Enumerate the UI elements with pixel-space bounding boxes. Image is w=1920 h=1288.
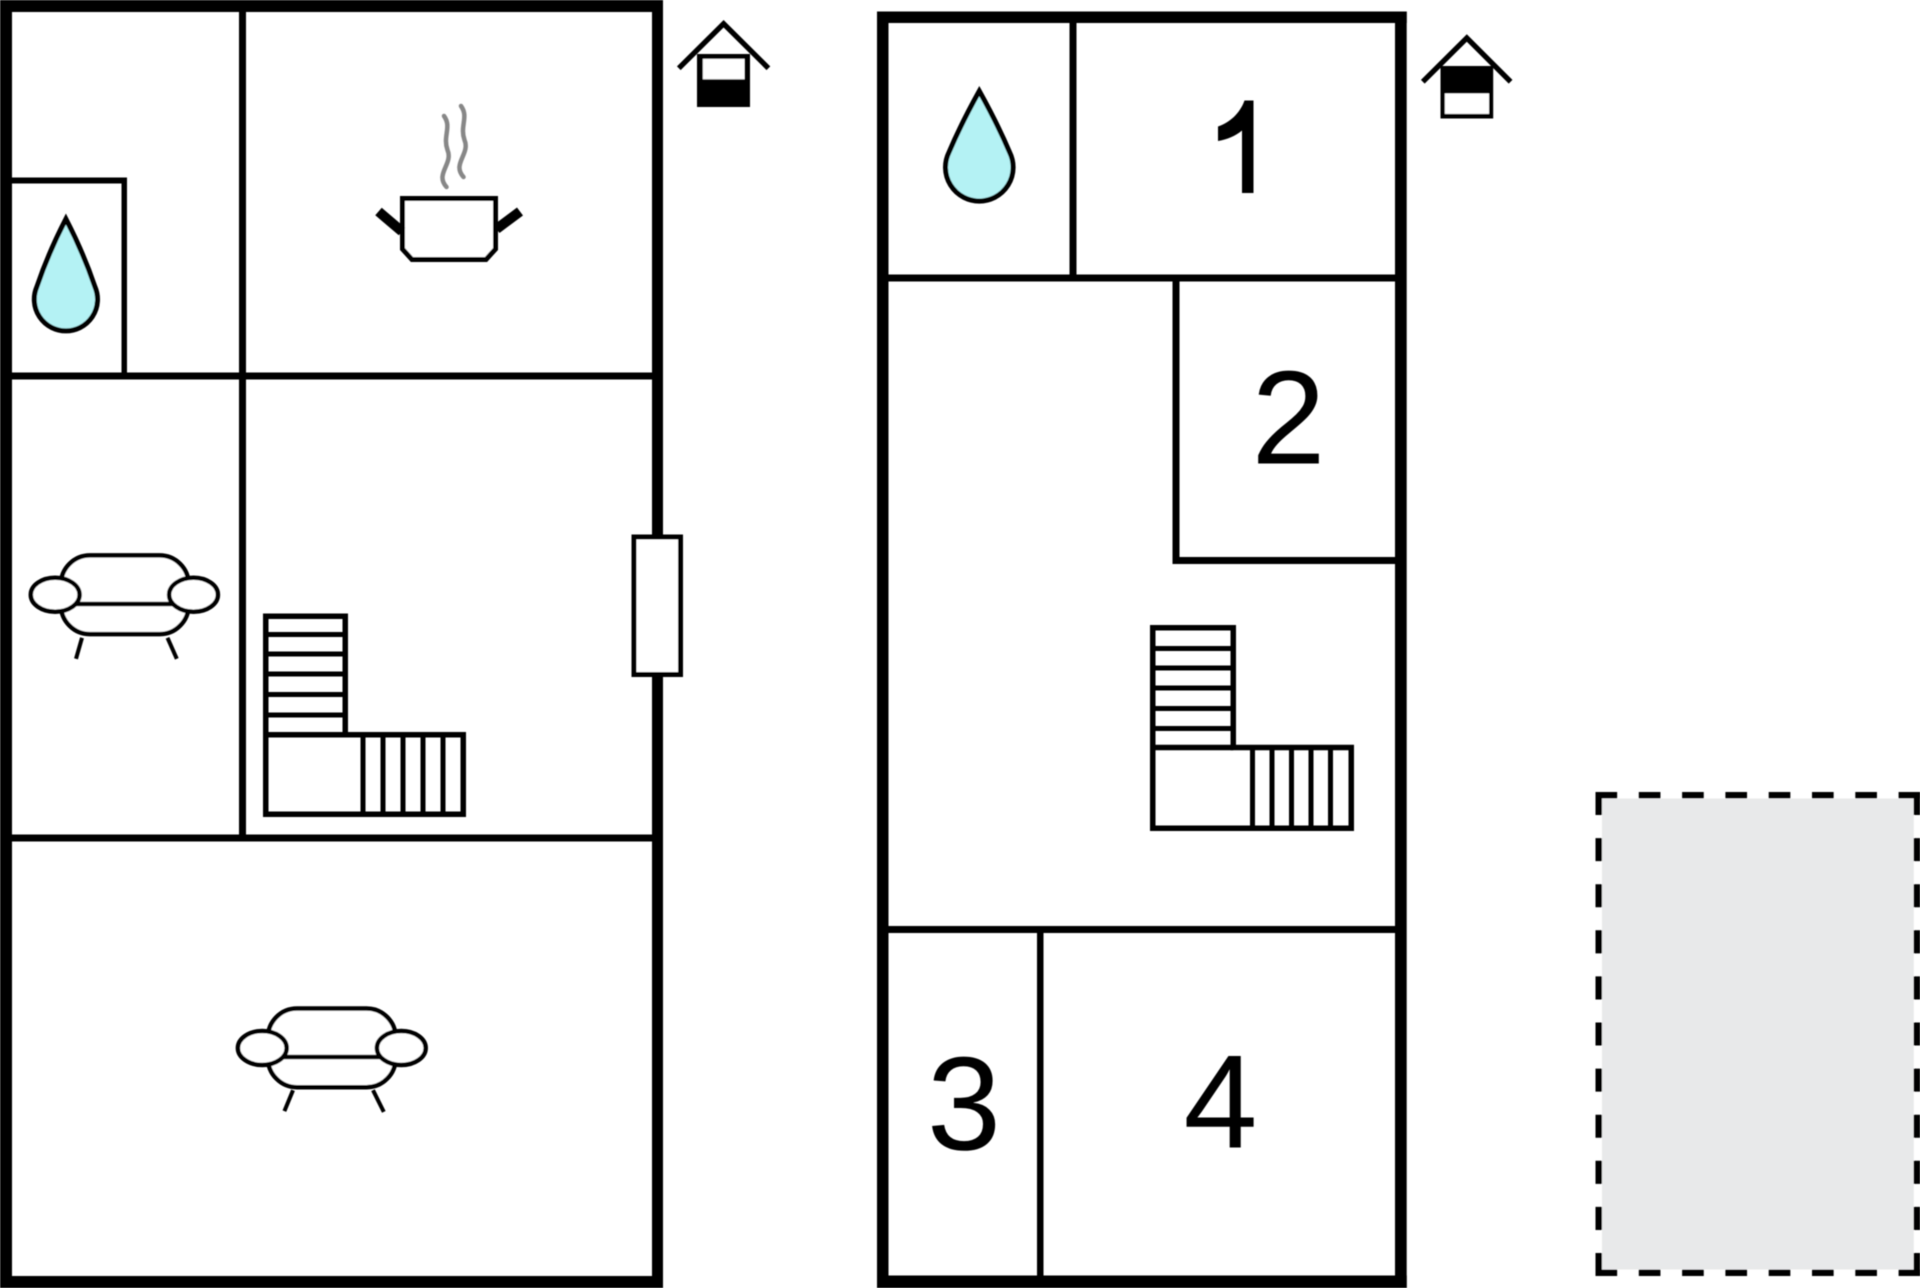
svg-text:3: 3 (927, 1031, 1001, 1179)
svg-text:4: 4 (1184, 1029, 1258, 1177)
svg-text:2: 2 (1252, 345, 1326, 493)
